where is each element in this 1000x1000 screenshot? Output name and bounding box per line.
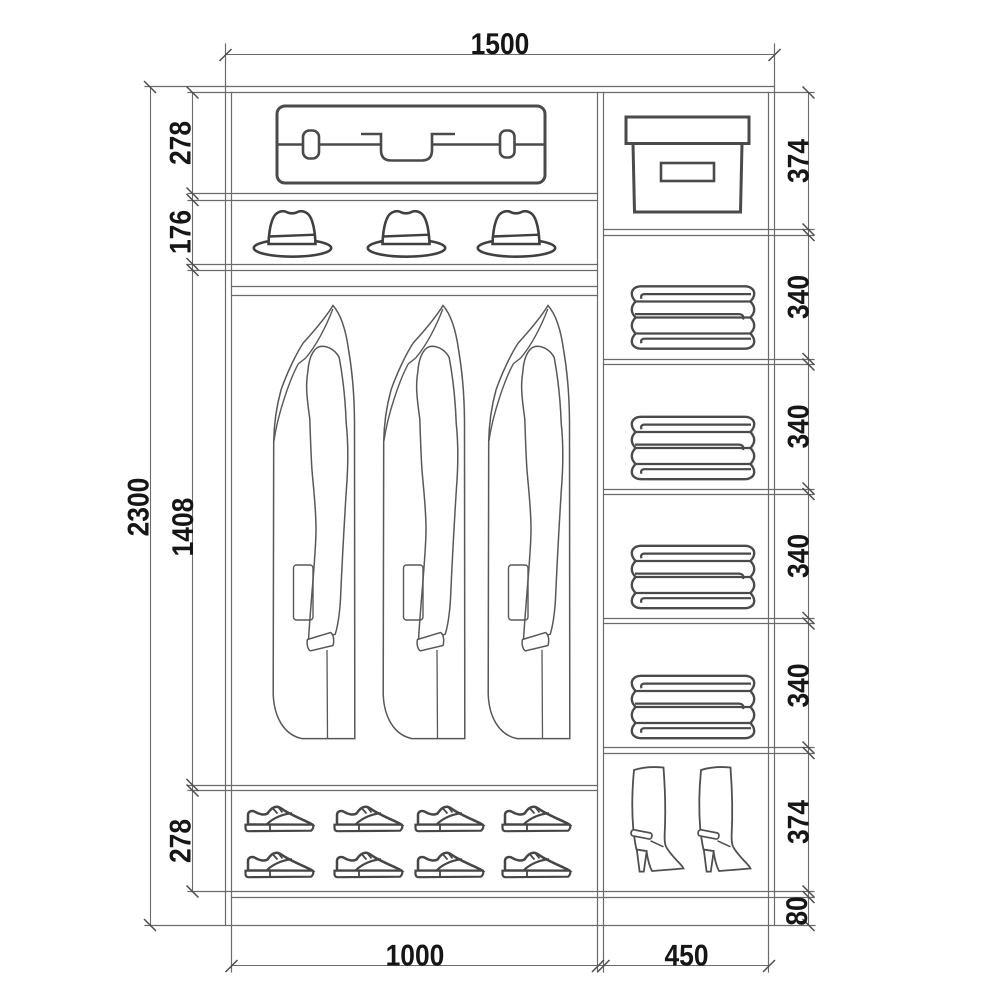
- svg-text:1500: 1500: [471, 28, 530, 61]
- svg-text:340: 340: [783, 663, 816, 707]
- svg-text:176: 176: [165, 210, 198, 254]
- svg-text:450: 450: [664, 940, 708, 973]
- svg-text:1408: 1408: [167, 498, 200, 557]
- svg-text:374: 374: [783, 800, 816, 844]
- svg-text:340: 340: [783, 404, 816, 448]
- svg-text:340: 340: [783, 275, 816, 319]
- svg-text:278: 278: [165, 819, 198, 863]
- svg-text:374: 374: [783, 139, 816, 183]
- svg-text:278: 278: [165, 121, 198, 165]
- svg-text:1000: 1000: [386, 940, 445, 973]
- svg-text:80: 80: [781, 896, 814, 925]
- svg-text:2300: 2300: [123, 478, 156, 537]
- svg-text:340: 340: [783, 534, 816, 578]
